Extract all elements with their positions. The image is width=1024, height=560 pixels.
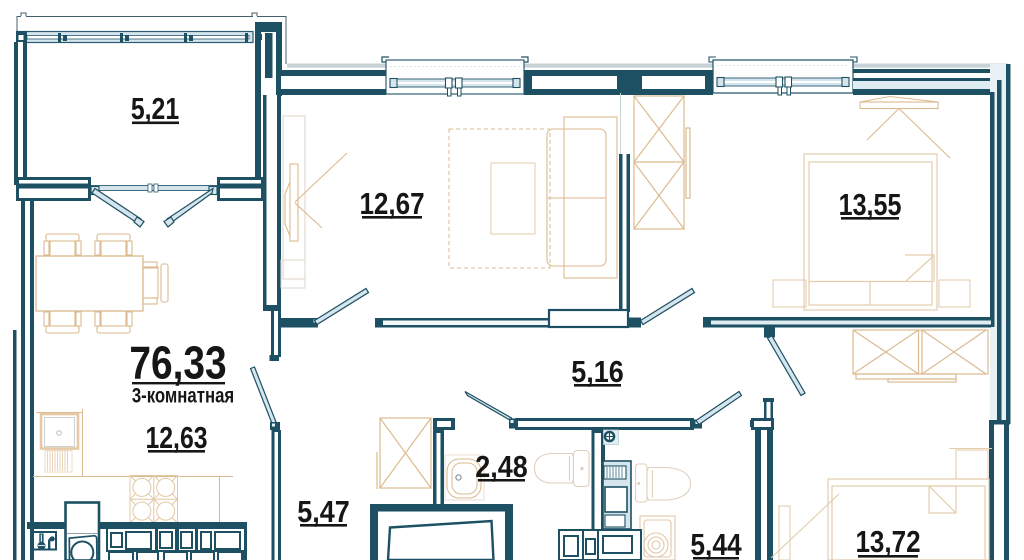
svg-text:13,55: 13,55: [839, 186, 902, 221]
svg-text:12,63: 12,63: [145, 420, 207, 454]
svg-text:76,33: 76,33: [129, 337, 226, 389]
svg-text:5,21: 5,21: [131, 91, 179, 125]
svg-text:13,72: 13,72: [855, 525, 920, 560]
svg-text:5,44: 5,44: [690, 528, 741, 560]
svg-text:3-комнатная: 3-комнатная: [132, 385, 234, 408]
